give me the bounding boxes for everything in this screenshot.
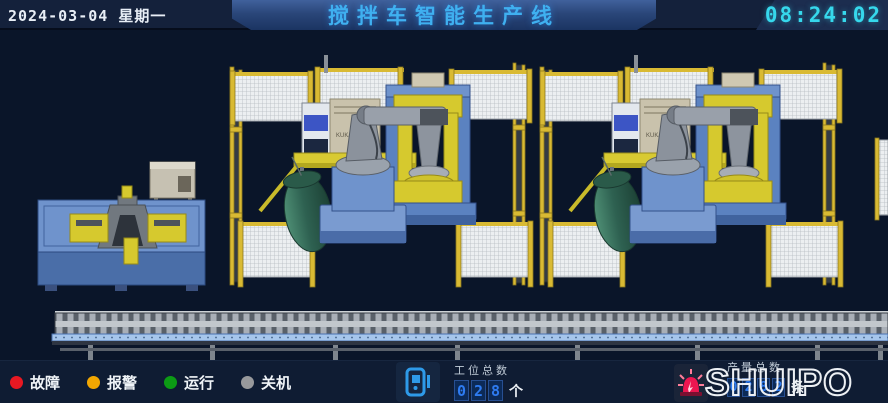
partial-fence-right <box>875 138 888 220</box>
fixture-station <box>38 162 205 291</box>
station-counter-unit: 个 <box>509 381 523 401</box>
station-digit: 2 <box>471 380 486 401</box>
roller-conveyor <box>52 311 888 360</box>
legend-alarm-label: 报警 <box>107 372 137 393</box>
date-display: 2024-03-04 星期一 <box>8 0 166 30</box>
welding-cell-1 <box>230 55 533 287</box>
clock-display: 08:24:02 <box>765 0 882 30</box>
station-digit: 0 <box>454 380 469 401</box>
legend-fault: 故障 <box>10 372 60 393</box>
fault-dot-icon <box>10 376 23 389</box>
production-line-scene: KUKA <box>0 30 888 360</box>
welding-cell-2 <box>540 55 843 287</box>
legend-off-label: 关机 <box>261 372 291 393</box>
alarm-dot-icon <box>87 376 100 389</box>
page-title: 搅拌车智能生产线 <box>328 0 560 30</box>
title-panel: 搅拌车智能生产线 <box>232 0 656 30</box>
scene-canvas: KUKA <box>0 30 888 360</box>
legend-off: 关机 <box>241 372 291 393</box>
status-legend: 故障 报警 运行 关机 <box>10 361 291 403</box>
running-dot-icon <box>164 376 177 389</box>
legend-fault-label: 故障 <box>30 372 60 393</box>
brand-logo: SHUIPO <box>703 360 888 403</box>
station-counter: 工位总数 0 2 8 个 <box>454 362 523 401</box>
status-bar: 故障 报警 运行 关机 工位总数 0 2 8 个 <box>0 360 888 403</box>
legend-running-label: 运行 <box>184 372 214 393</box>
station-counter-digits: 0 2 8 个 <box>454 380 523 401</box>
brand-logo-text: SHUIPO <box>705 362 853 403</box>
legend-alarm: 报警 <box>87 372 137 393</box>
station-counter-label: 工位总数 <box>454 362 523 378</box>
station-digit: 8 <box>488 380 503 401</box>
header-bar: 2024-03-04 星期一 搅拌车智能生产线 08:24:02 <box>0 0 888 30</box>
legend-running: 运行 <box>164 372 214 393</box>
mobile-device-icon[interactable] <box>396 362 440 402</box>
off-dot-icon <box>241 376 254 389</box>
